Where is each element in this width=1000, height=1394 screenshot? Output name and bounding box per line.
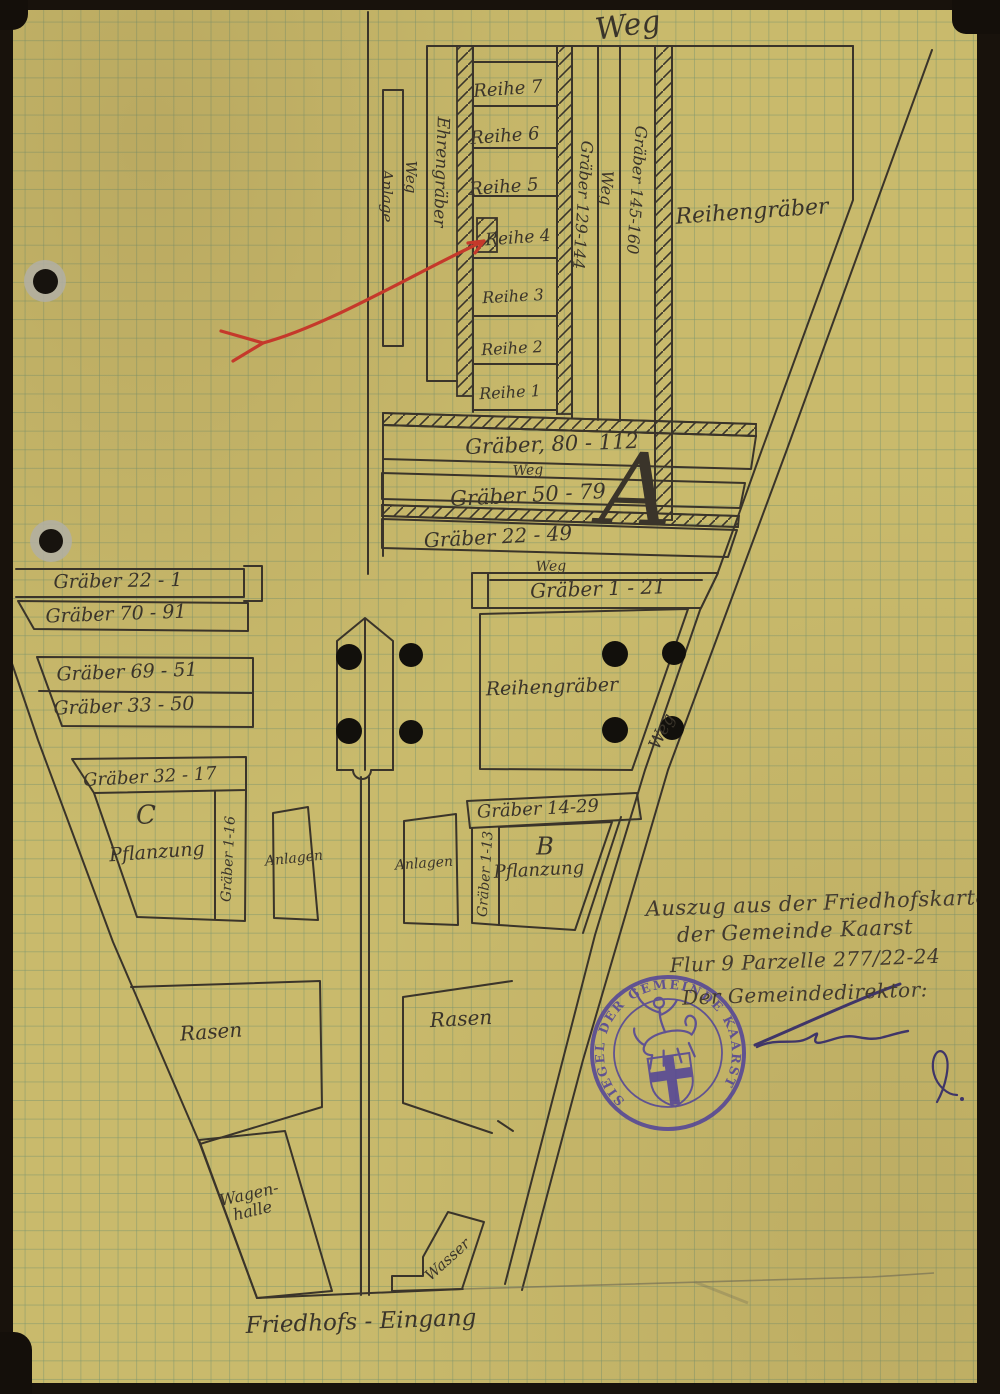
label-graeber-22-1: Gräber 22 - 1: [53, 571, 182, 593]
label-section-c: C: [136, 802, 156, 829]
scan-edge-top: [0, 0, 1000, 10]
label-reihe-3: Reihe 3: [482, 287, 544, 307]
seal-shield-cross: [648, 1053, 697, 1109]
label-section-a: A: [598, 436, 674, 543]
label-graeber-1-21: Gräber 1 - 21: [530, 576, 666, 602]
scan-edge-left: [0, 0, 13, 1394]
hole-punch-top: [33, 269, 58, 294]
scanned-cemetery-map-page: SIEGEL DER GEMEINDE KAARST: [0, 0, 1000, 1394]
label-anlage: Anlage: [378, 170, 394, 223]
label-weg-column: Weg: [597, 170, 615, 205]
label-rasen-east: Rasen: [429, 1007, 492, 1031]
label-section-b: B: [536, 834, 554, 859]
initial-mark: [933, 1051, 957, 1102]
faint-pencil-lines: [463, 1273, 934, 1303]
scan-edge-right: [977, 0, 1000, 1394]
label-weg-1: Weg: [512, 463, 543, 479]
label-ehrengraeber: Ehrengräber: [429, 116, 451, 227]
red-annotation-arrow: [221, 241, 484, 361]
label-weg-2: Weg: [536, 559, 567, 575]
label-reihe-1: Reihe 1: [479, 383, 541, 403]
scan-corner-top-right: [952, 0, 1000, 34]
label-rasen-west: Rasen: [179, 1019, 243, 1044]
label-reihe-2: Reihe 2: [481, 339, 543, 359]
label-weg-vertical: Weg: [402, 161, 418, 194]
scan-corner-bottom-left: [0, 1332, 32, 1394]
scan-edge-bottom: [0, 1383, 1000, 1394]
hole-punch-bottom: [39, 529, 63, 553]
